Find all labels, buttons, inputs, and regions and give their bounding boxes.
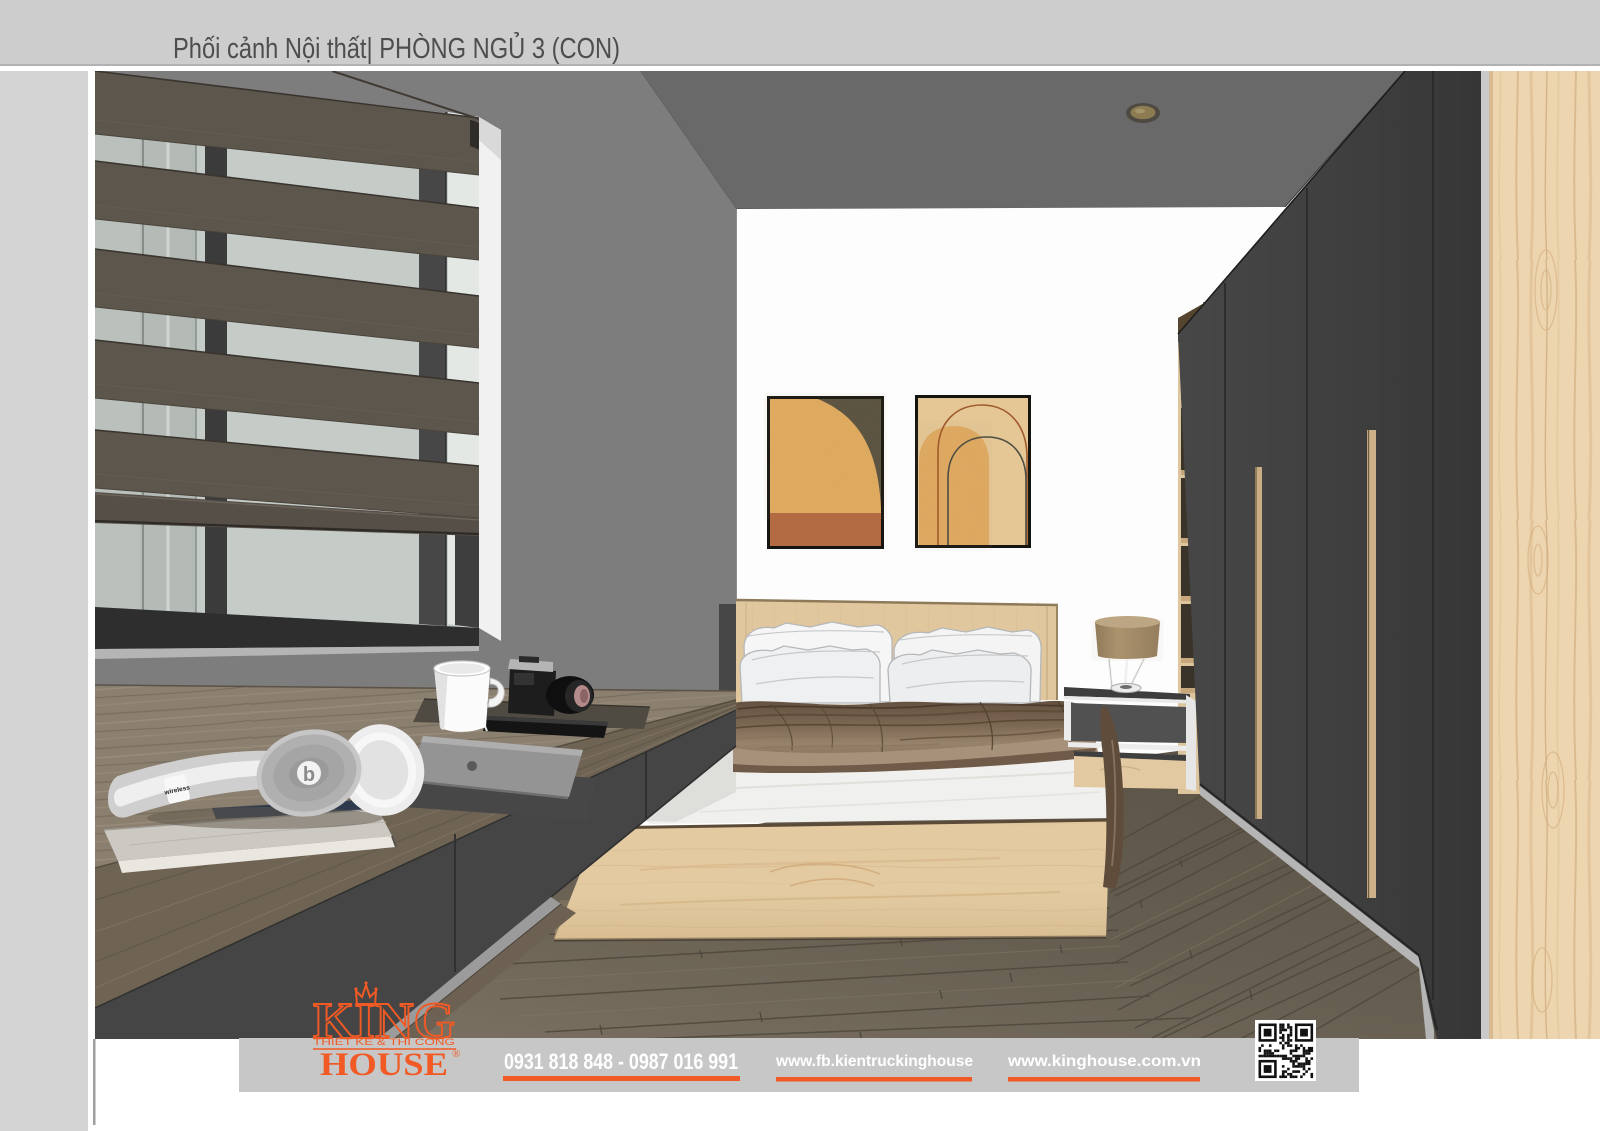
svg-text:b: b [303,764,315,786]
svg-text:HOUSE: HOUSE [320,1047,448,1083]
svg-text:www.kinghouse.com.vn: www.kinghouse.com.vn [1007,1053,1201,1070]
svg-text:www.fb.kientruckinghouse: www.fb.kientruckinghouse [775,1053,973,1070]
svg-text:Phối cảnh Nội thất| PHÒNG NGỦ: Phối cảnh Nội thất| PHÒNG NGỦ 3 (CON) [173,31,620,65]
svg-text:®: ® [452,1048,460,1060]
svg-text:0931 818 848 - 0987 016 991: 0931 818 848 - 0987 016 991 [504,1049,738,1074]
